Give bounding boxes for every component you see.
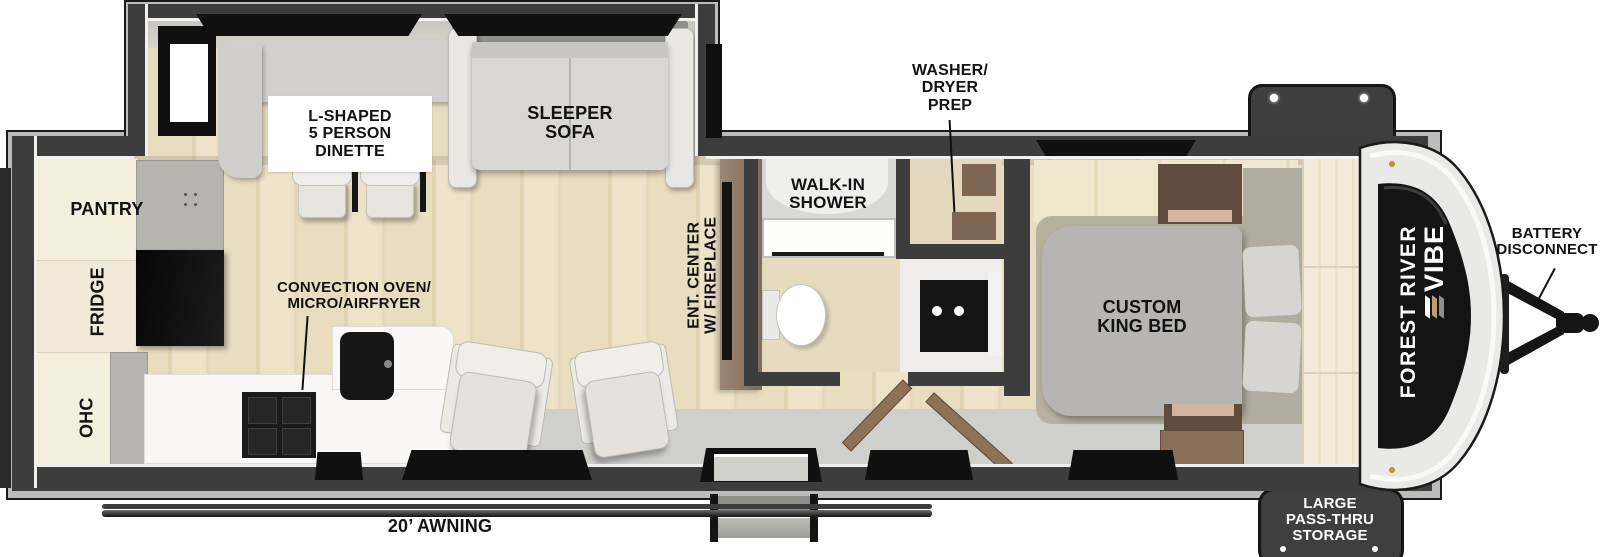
nightstand <box>1158 164 1242 224</box>
bed-pillow <box>1242 321 1302 394</box>
entry-door <box>700 448 822 482</box>
dinette-chair <box>292 164 350 218</box>
vibe-chevron-icon <box>1425 297 1444 317</box>
badge-rivet <box>1372 546 1378 552</box>
dinette-bench-left <box>218 42 262 178</box>
washer-dryer-cabinet <box>962 164 996 196</box>
living-room-window <box>402 450 592 480</box>
hall-window <box>865 450 973 480</box>
fridge-label: FRIDGE <box>88 257 107 347</box>
brand-model: VIBE <box>1419 225 1449 292</box>
bathroom-mid-wall <box>896 244 1018 259</box>
ohc-label: OHC <box>77 388 96 448</box>
sleeper-sofa-label: SLEEPER SOFA <box>500 104 640 143</box>
slide-side-window-pane <box>170 44 208 122</box>
slide-out-left-wall <box>128 4 148 156</box>
washer-dryer-cabinet <box>952 212 996 240</box>
washer-dryer-label: WASHER/ DRYER PREP <box>898 62 1002 114</box>
toilet-bowl <box>776 284 826 346</box>
slide-window <box>196 14 422 36</box>
bathroom-bottom-wall-left <box>744 372 840 386</box>
refrigerator <box>136 250 224 346</box>
convection-cooktop <box>242 392 316 458</box>
ohc-cabinet <box>36 352 112 472</box>
vanity-knob <box>932 306 942 316</box>
rear-bumper <box>0 168 11 488</box>
badge-rivet <box>1280 546 1286 552</box>
bathroom-left-wall <box>744 156 758 386</box>
front-cap <box>1340 126 1600 506</box>
battery-disconnect-label: BATTERY DISCONNECT <box>1494 226 1600 258</box>
lower-gray-cabinet <box>110 352 148 470</box>
swivel-chair <box>436 339 553 469</box>
bathroom-divider-wall <box>896 156 910 258</box>
dinette-table-leg <box>420 166 426 212</box>
dinette-label: L-SHAPED 5 PERSON DINETTE <box>268 96 432 172</box>
vanity-sink <box>920 280 992 352</box>
slide-window <box>444 14 682 36</box>
ent-center-label: ENT. CENTER W/ FIREPLACE <box>686 190 721 360</box>
dinette-chair <box>360 164 418 218</box>
entry-step <box>710 494 818 542</box>
slide-right-wall-panel <box>706 44 722 138</box>
awning-bar <box>102 504 932 517</box>
brand-logo: FOREST RIVER VIBE <box>1398 225 1464 415</box>
lp-platform-rivet <box>1360 94 1368 102</box>
convection-oven-label: CONVECTION OVEN/ MICRO/AIRFRYER <box>254 280 454 312</box>
lp-platform-rivet <box>1270 94 1278 102</box>
king-bed-label: CUSTOM KING BED <box>1080 298 1204 337</box>
vanity-mirror <box>988 272 1002 356</box>
bed-pillow <box>1242 245 1302 318</box>
rear-wall <box>12 136 37 488</box>
brand-manufacturer: FOREST RIVER <box>1398 225 1419 415</box>
tv-fireplace <box>722 182 732 360</box>
pantry-label: PANTRY <box>52 200 162 219</box>
floorplan-canvas: L-SHAPED 5 PERSON DINETTE SLEEPER SOFA P… <box>0 0 1600 557</box>
walk-in-shower-label: WALK-IN SHOWER <box>762 176 894 213</box>
swivel-chair <box>568 339 680 465</box>
awning-label: 20’ AWNING <box>382 517 498 536</box>
bedroom-side-window <box>1068 450 1178 480</box>
dinette-table-leg <box>352 166 358 212</box>
sleeper-sofa <box>448 20 692 172</box>
vanity-knob <box>954 306 964 316</box>
bathroom-bottom-wall-right <box>908 372 1008 386</box>
bedroom-window <box>1036 140 1196 156</box>
faucet <box>384 360 392 368</box>
shower-threshold <box>772 252 884 256</box>
bathroom-bedroom-wall <box>1004 156 1030 396</box>
kitchen-window <box>315 452 363 480</box>
